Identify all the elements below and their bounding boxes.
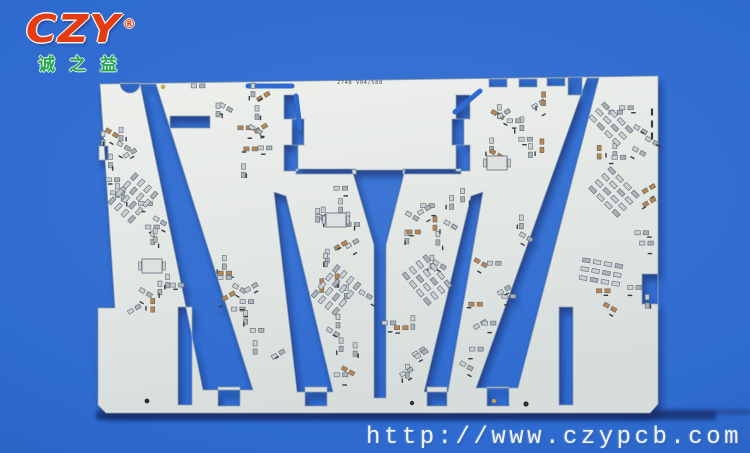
logo-wordmark: CZY® — [26, 10, 136, 49]
brand-logo: CZY® 诚之益 — [26, 8, 136, 73]
website-link[interactable]: http://www.czypcb.com — [366, 424, 742, 451]
pcb-panel: 2748 V04/588 — [98, 76, 661, 413]
registered-trademark-icon: ® — [123, 18, 136, 32]
pcb-panel-outline — [98, 76, 658, 413]
panel-shadow-right — [640, 409, 750, 415]
pcb-board-label: 2748 V04/588 — [337, 80, 383, 86]
logo-chinese-text: 诚之益 — [38, 56, 136, 73]
product-photo: 2748 V04/588 CZY® 诚之益 http://www.czypcb.… — [0, 0, 750, 453]
logo-text: CZY — [26, 6, 121, 51]
